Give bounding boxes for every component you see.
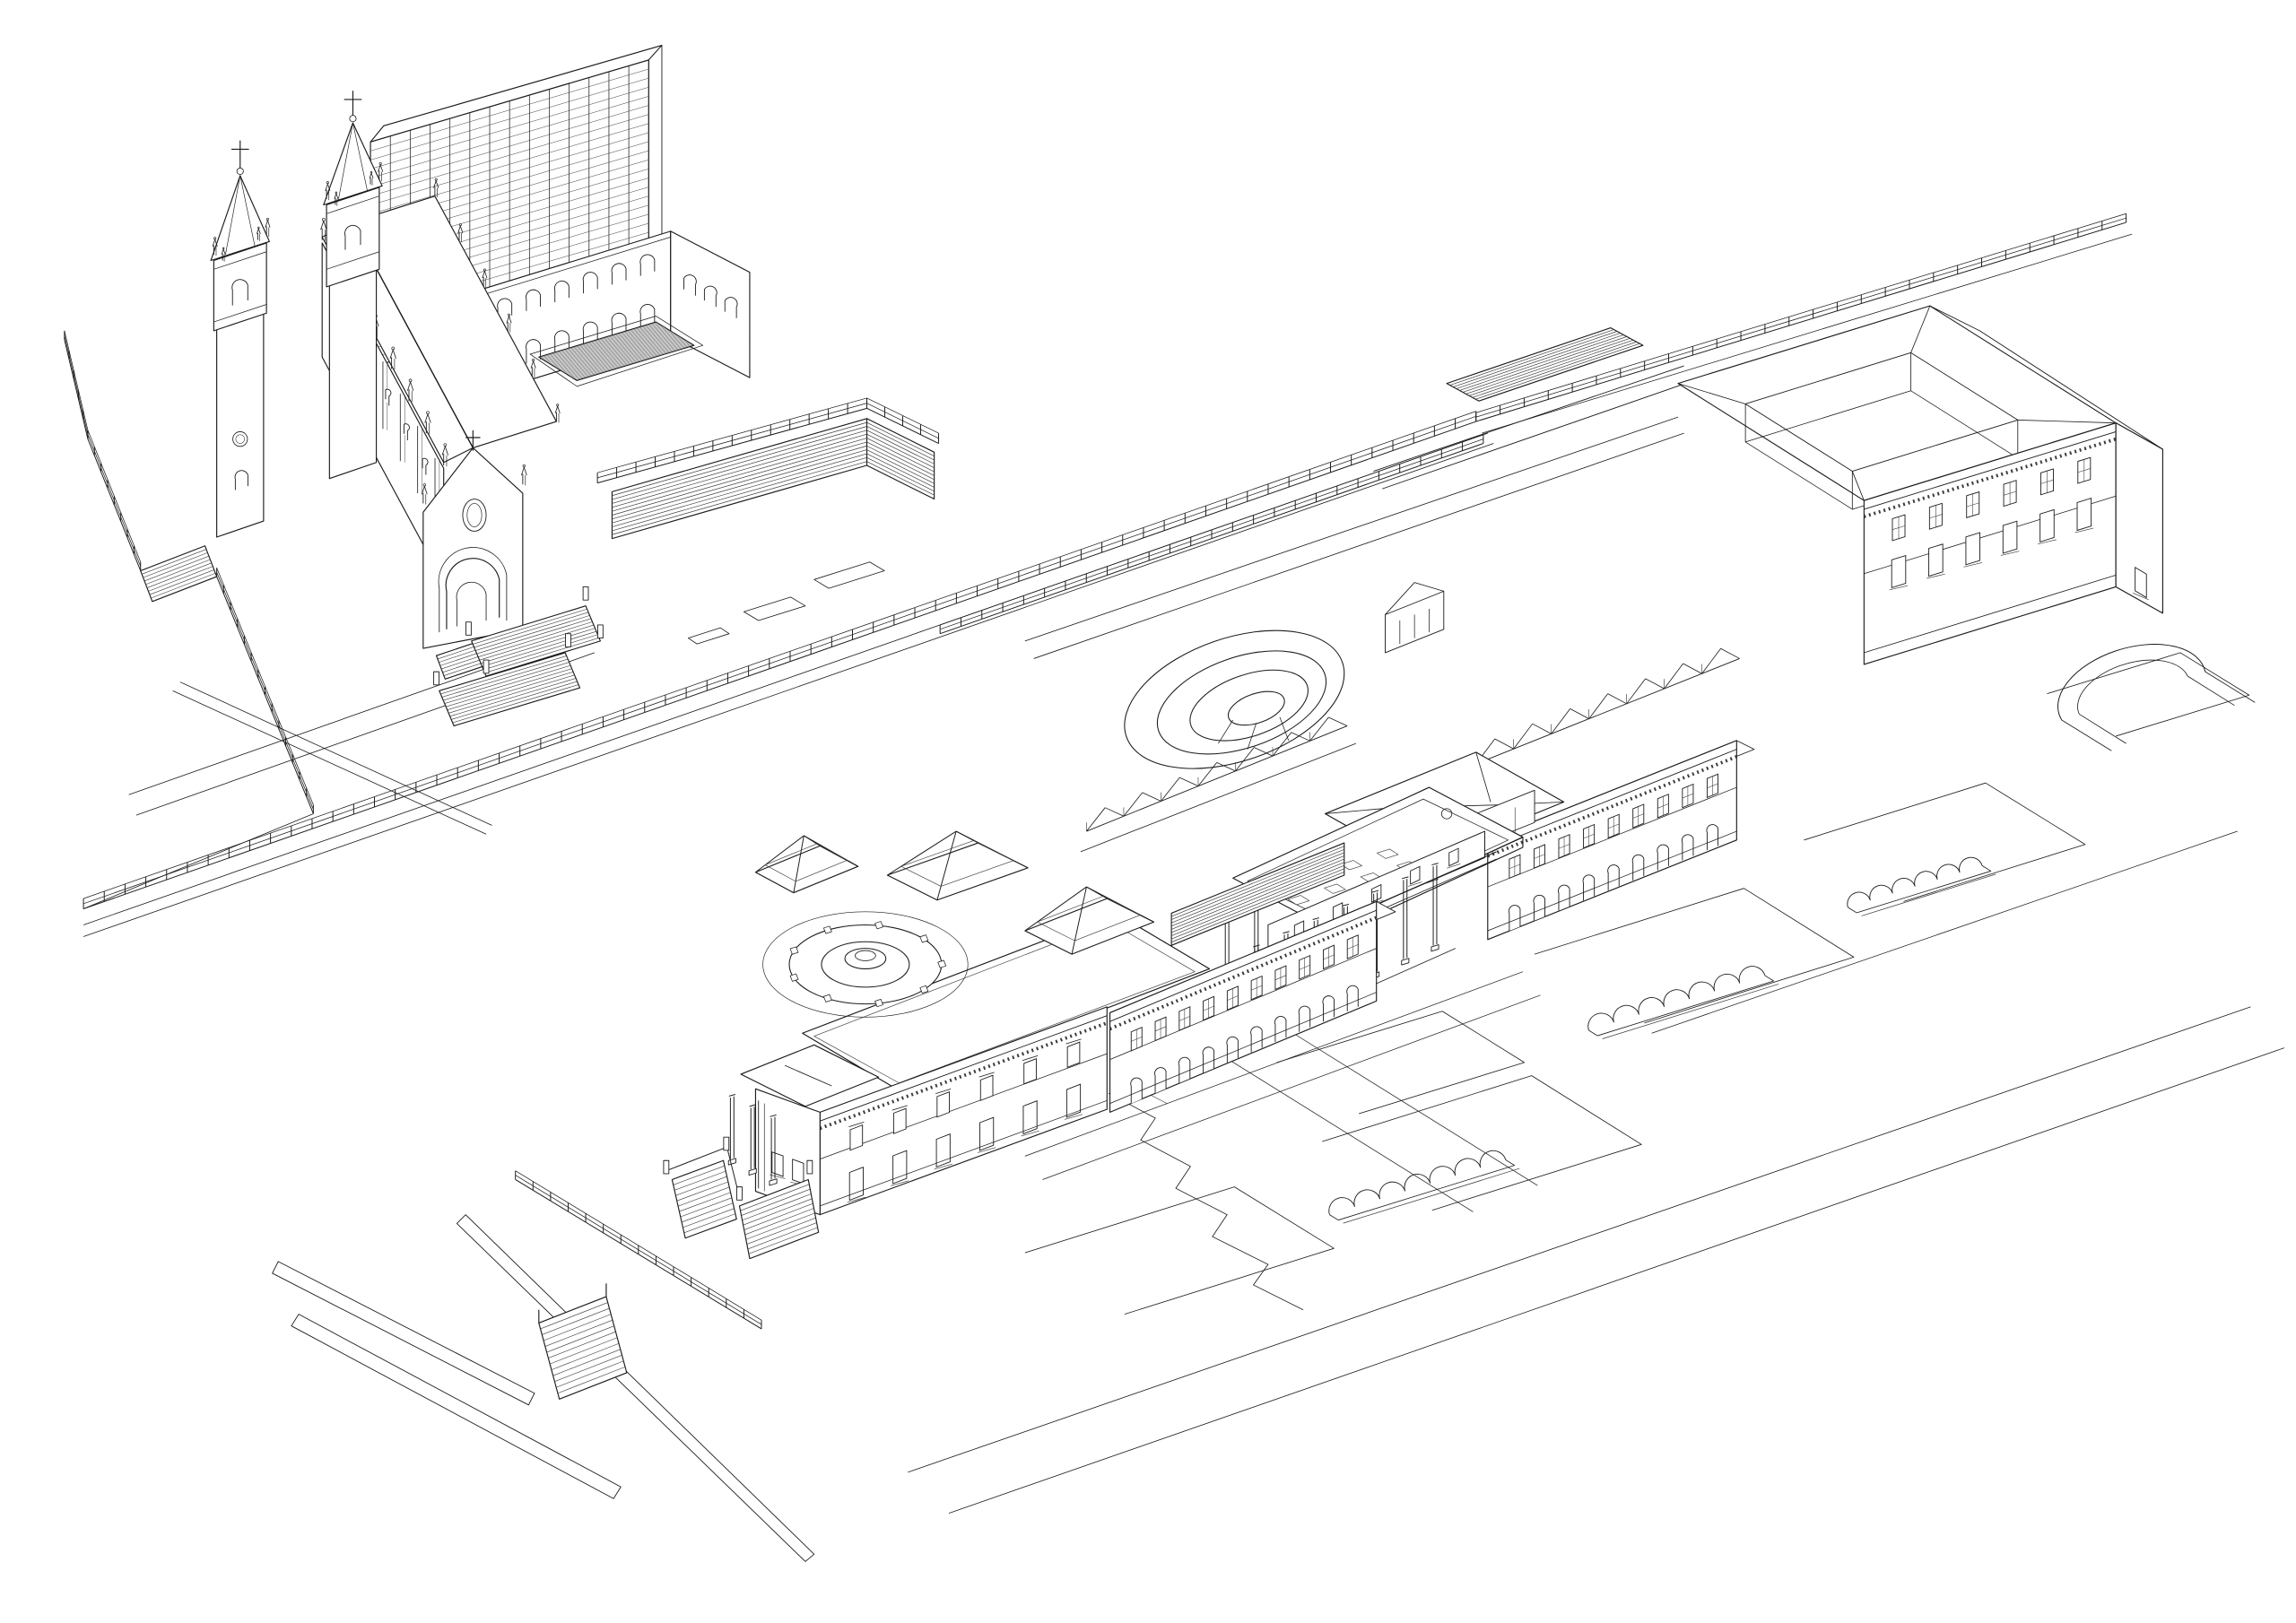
museum-north-block (1025, 306, 2163, 664)
drawing-canvas (0, 0, 2296, 1623)
museum-apse-dome (1107, 583, 1444, 795)
church-towers (211, 91, 383, 537)
axonometric-drawing (0, 0, 2296, 1623)
